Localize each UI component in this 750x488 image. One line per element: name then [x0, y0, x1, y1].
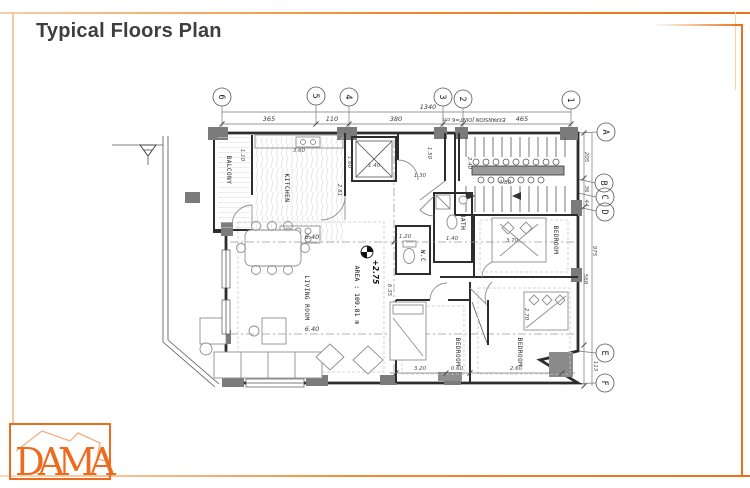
dim-36: 36	[583, 186, 589, 193]
elevator: 1.40 1.60	[346, 137, 396, 181]
grid-col-6: 6	[216, 94, 226, 99]
kitchen: KITCHEN 3.60 2.81	[252, 133, 345, 243]
dim-living-w1: 6.40	[305, 233, 319, 241]
dim-balcony: 1.10	[239, 149, 245, 162]
top-dimensions: 1340 365 110 380 EXPANSION JOINT=6 cm 46…	[220, 103, 574, 127]
bedroom-b-label: BEDROOM	[454, 338, 461, 367]
level-value: +2.75	[371, 260, 380, 285]
grid-col-3: 3	[437, 94, 447, 99]
benchmark-symbol	[112, 145, 163, 165]
grid-row-E: E	[599, 350, 609, 355]
dim-living-w2: 6.40	[305, 325, 319, 333]
balcony: BALCONY 1.10	[218, 136, 250, 228]
grid-row-F: F	[599, 380, 609, 385]
balcony-label: BALCONY	[225, 156, 232, 185]
dim-elevator-h: 1.60	[346, 156, 352, 169]
logo-text: DAMA	[15, 440, 116, 483]
grid-row-D: D	[599, 209, 609, 214]
expansion-joint-note: EXPANSION JOINT=6 cm	[443, 116, 506, 122]
dim-bath-w: 1.40	[446, 236, 459, 242]
grid-col-5: 5	[310, 93, 320, 98]
wc-label: W.C	[419, 250, 426, 262]
living-room-label: LIVING ROOM	[303, 275, 310, 320]
dim-elevator-w: 1.40	[368, 163, 381, 169]
dim-bot-3: 2.60	[510, 366, 523, 372]
hall-walls: 1.30 1.50 2.40	[398, 133, 472, 200]
area-value: AREA : 109.81 m	[353, 266, 361, 325]
dim-465: 465	[516, 115, 528, 123]
dim-stair: 4.80	[499, 180, 512, 186]
bedroom-a-label: BEDROOM	[552, 226, 559, 255]
dama-logo: DAMA	[8, 421, 120, 483]
dim-hall-2: 1.50	[426, 147, 432, 160]
dim-975: 975	[591, 246, 597, 257]
level-marker: +2.75 AREA : 109.81 m	[353, 246, 380, 324]
wc: W.C 1.20	[396, 226, 430, 274]
dim-bedroom-a: 3.70	[506, 238, 519, 244]
right-dimensions: 205 36 44 975 568 113	[582, 131, 599, 389]
grid-row-B: B	[598, 180, 608, 185]
dim-bot-4: 2.70	[523, 308, 529, 321]
staircase: 4.80	[455, 133, 578, 215]
dim-bot-2: 0.60	[451, 366, 464, 372]
dim-overall-top: 1340	[420, 103, 437, 111]
dim-wc: 1.20	[399, 234, 412, 240]
grid-column-bubbles: 6 5 4 3 2 1	[213, 87, 580, 133]
dim-110: 110	[326, 115, 338, 123]
floor-plan-drawing: 6 5 4 3 2 1 A B C D E F 1340	[0, 0, 750, 488]
bath-label: BATH	[459, 214, 466, 230]
grid-row-C: C	[599, 194, 609, 199]
grid-col-2: 2	[457, 96, 467, 101]
kitchen-label: KITCHEN	[283, 174, 290, 203]
dim-568: 568	[582, 274, 588, 285]
dim-380: 380	[390, 115, 402, 123]
dim-44: 44	[583, 200, 589, 207]
dim-kitchen-h: 2.81	[336, 184, 342, 196]
dim-365: 365	[263, 115, 275, 123]
grid-col-1: 1	[565, 97, 575, 102]
grid-col-4: 4	[343, 94, 353, 99]
bedroom-c-label: BEDROOM	[516, 338, 523, 367]
dim-living-h: 6.35	[386, 284, 392, 297]
dim-hall-3: 2.40	[466, 157, 472, 170]
dim-205: 205	[583, 152, 589, 163]
dim-kitchen-w: 3.60	[293, 148, 306, 154]
dim-hall-1: 1.30	[414, 173, 427, 179]
dim-113: 113	[592, 361, 598, 372]
grid-row-A: A	[600, 129, 610, 134]
dim-bot-1: 3.20	[414, 366, 427, 372]
